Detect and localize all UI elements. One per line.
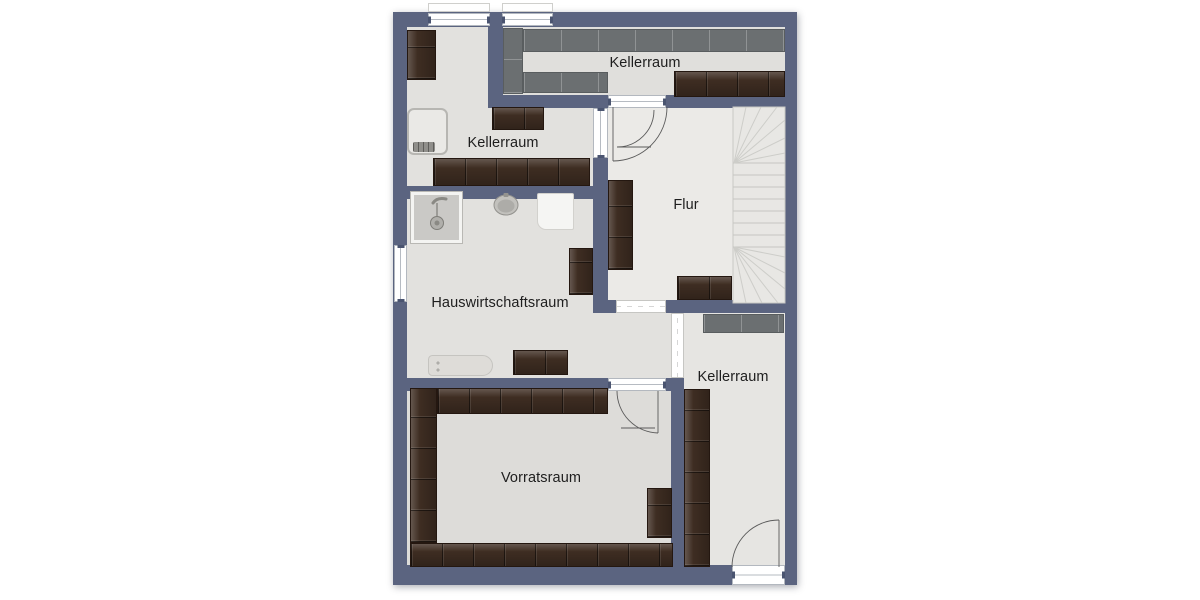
wall-flur-bottom-right [666,300,785,313]
page: Kellerraum Kellerraum Flur Hauswirtschaf… [0,0,1200,600]
cabinet-topright [674,71,785,97]
room-label-hauswirtschaftsraum: Hauswirtschaftsraum [431,296,568,311]
water-heater-controls [413,142,435,152]
window-well-right [502,3,553,12]
cabinet-upperleft-mid [492,107,544,130]
passage-kellerraum-right [671,313,684,378]
door-opening-vorratsraum [608,378,666,391]
wall-outer-right [785,12,797,585]
room-label-vorratsraum: Vorratsraum [501,471,581,486]
shelf-column-right-room [684,389,710,567]
ironing-board [428,355,493,376]
window-top-1 [428,13,490,26]
floor-plan: Kellerraum Kellerraum Flur Hauswirtschaf… [393,12,797,585]
room-label-kellerraum-right: Kellerraum [697,370,768,385]
cabinet-flur-left [608,180,633,270]
shelf-vorrat-top [437,388,608,414]
shelf-row-upperleft [433,158,590,186]
wall-kellerraum-right-left [671,378,684,567]
window-left [394,245,407,302]
wall-between-top-rooms [488,12,503,108]
shower [411,192,462,243]
gray-shelf-top [523,29,785,52]
cabinet-upperleft-wall [407,30,436,80]
window-well-left [428,3,490,12]
wall-flur-left [593,158,608,313]
table-hwr [513,350,568,375]
door-opening-flur-left [593,108,608,158]
wall-flur-bottom-left [593,300,616,313]
shelf-vorrat-bottom [410,543,673,567]
washing-machine [537,193,574,230]
shelf-vorrat-left [410,388,437,543]
opening-flur-bottom [616,300,666,313]
room-label-kellerraum-top: Kellerraum [609,56,680,71]
gray-shelf-left [503,28,523,94]
cabinet-hwr-right [569,248,593,295]
cabinet-vorrat-right [647,488,672,538]
cabinet-flur-bottom [677,276,732,300]
door-opening-exterior-bottom [732,565,785,585]
wall-vorratsraum-top-right [666,378,671,391]
door-opening-flur-top [608,95,666,108]
room-label-flur: Flur [673,198,698,213]
gray-shelf-right-room [703,314,784,333]
window-top-2 [502,13,553,26]
gray-shelf-bottom [523,72,608,93]
room-label-kellerraum-upper-left: Kellerraum [467,136,538,151]
